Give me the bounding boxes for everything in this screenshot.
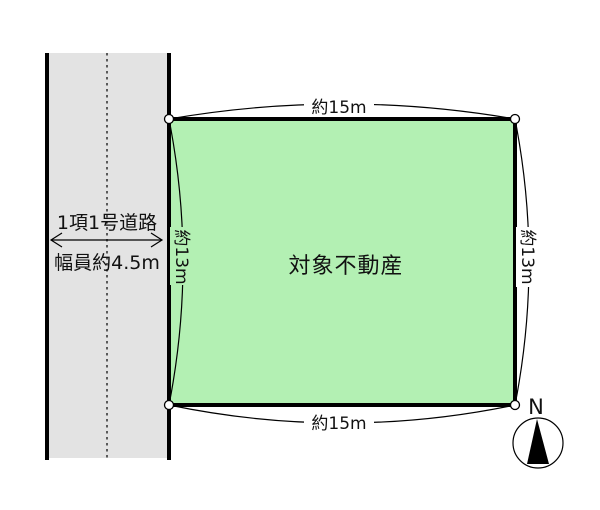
road-width-label: 幅員約4.5m — [54, 252, 160, 274]
north-compass: N — [513, 395, 563, 468]
corner-marker-top-right — [511, 115, 520, 124]
dimension-label-bottom: 約15m — [311, 414, 366, 434]
parcel-label: 対象不動産 — [288, 254, 403, 279]
site-plan-canvas: 約15m 約15m 約13m 約13m 1項1号道路 幅員約4.5m 対象不動産… — [0, 0, 600, 510]
dimension-label-left: 約13m — [171, 229, 191, 284]
compass-north-label: N — [528, 395, 544, 419]
corner-marker-bottom-right — [511, 401, 520, 410]
dimension-label-top: 約15m — [311, 98, 366, 118]
corner-marker-bottom-left — [165, 401, 174, 410]
road-type-label: 1項1号道路 — [57, 212, 157, 234]
corner-marker-top-left — [165, 115, 174, 124]
dimension-label-right: 約13m — [517, 229, 537, 284]
site-plan-svg: 約15m 約15m 約13m 約13m 1項1号道路 幅員約4.5m 対象不動産… — [0, 0, 600, 510]
